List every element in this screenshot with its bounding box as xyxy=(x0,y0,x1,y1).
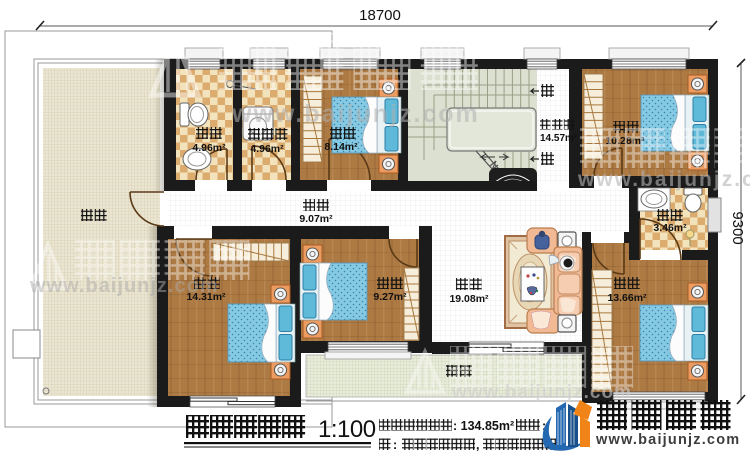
svg-text:9.27m²: 9.27m² xyxy=(373,291,407,303)
svg-text:8.14m²: 8.14m² xyxy=(324,141,358,153)
svg-text:3.46m²: 3.46m² xyxy=(653,222,687,234)
svg-text:www.baijunjz.com: www.baijunjz.com xyxy=(29,275,219,297)
svg-text:1:100: 1:100 xyxy=(318,416,376,443)
svg-text:14.57m²: 14.57m² xyxy=(540,133,578,144)
svg-text:4.96m²: 4.96m² xyxy=(250,143,284,155)
svg-text:,: , xyxy=(476,438,479,452)
svg-text:18700: 18700 xyxy=(359,7,401,24)
svg-text:9300: 9300 xyxy=(729,211,746,244)
svg-text:www.baijunjz.com: www.baijunjz.com xyxy=(451,382,632,403)
svg-text:19.08m²: 19.08m² xyxy=(449,293,489,305)
svg-text:www.baijunjz.com: www.baijunjz.com xyxy=(595,432,740,448)
svg-text:13.66m²: 13.66m² xyxy=(607,292,647,304)
svg-text:: 134.85m²: : 134.85m² xyxy=(453,419,514,433)
svg-text:www.baijunjz.com: www.baijunjz.com xyxy=(577,168,750,191)
svg-text:www.baijunjz.com: www.baijunjz.com xyxy=(231,100,480,128)
svg-text:4.96m²: 4.96m² xyxy=(192,142,226,154)
svg-text:9.07m²: 9.07m² xyxy=(299,213,333,225)
svg-text::: : xyxy=(393,438,397,452)
